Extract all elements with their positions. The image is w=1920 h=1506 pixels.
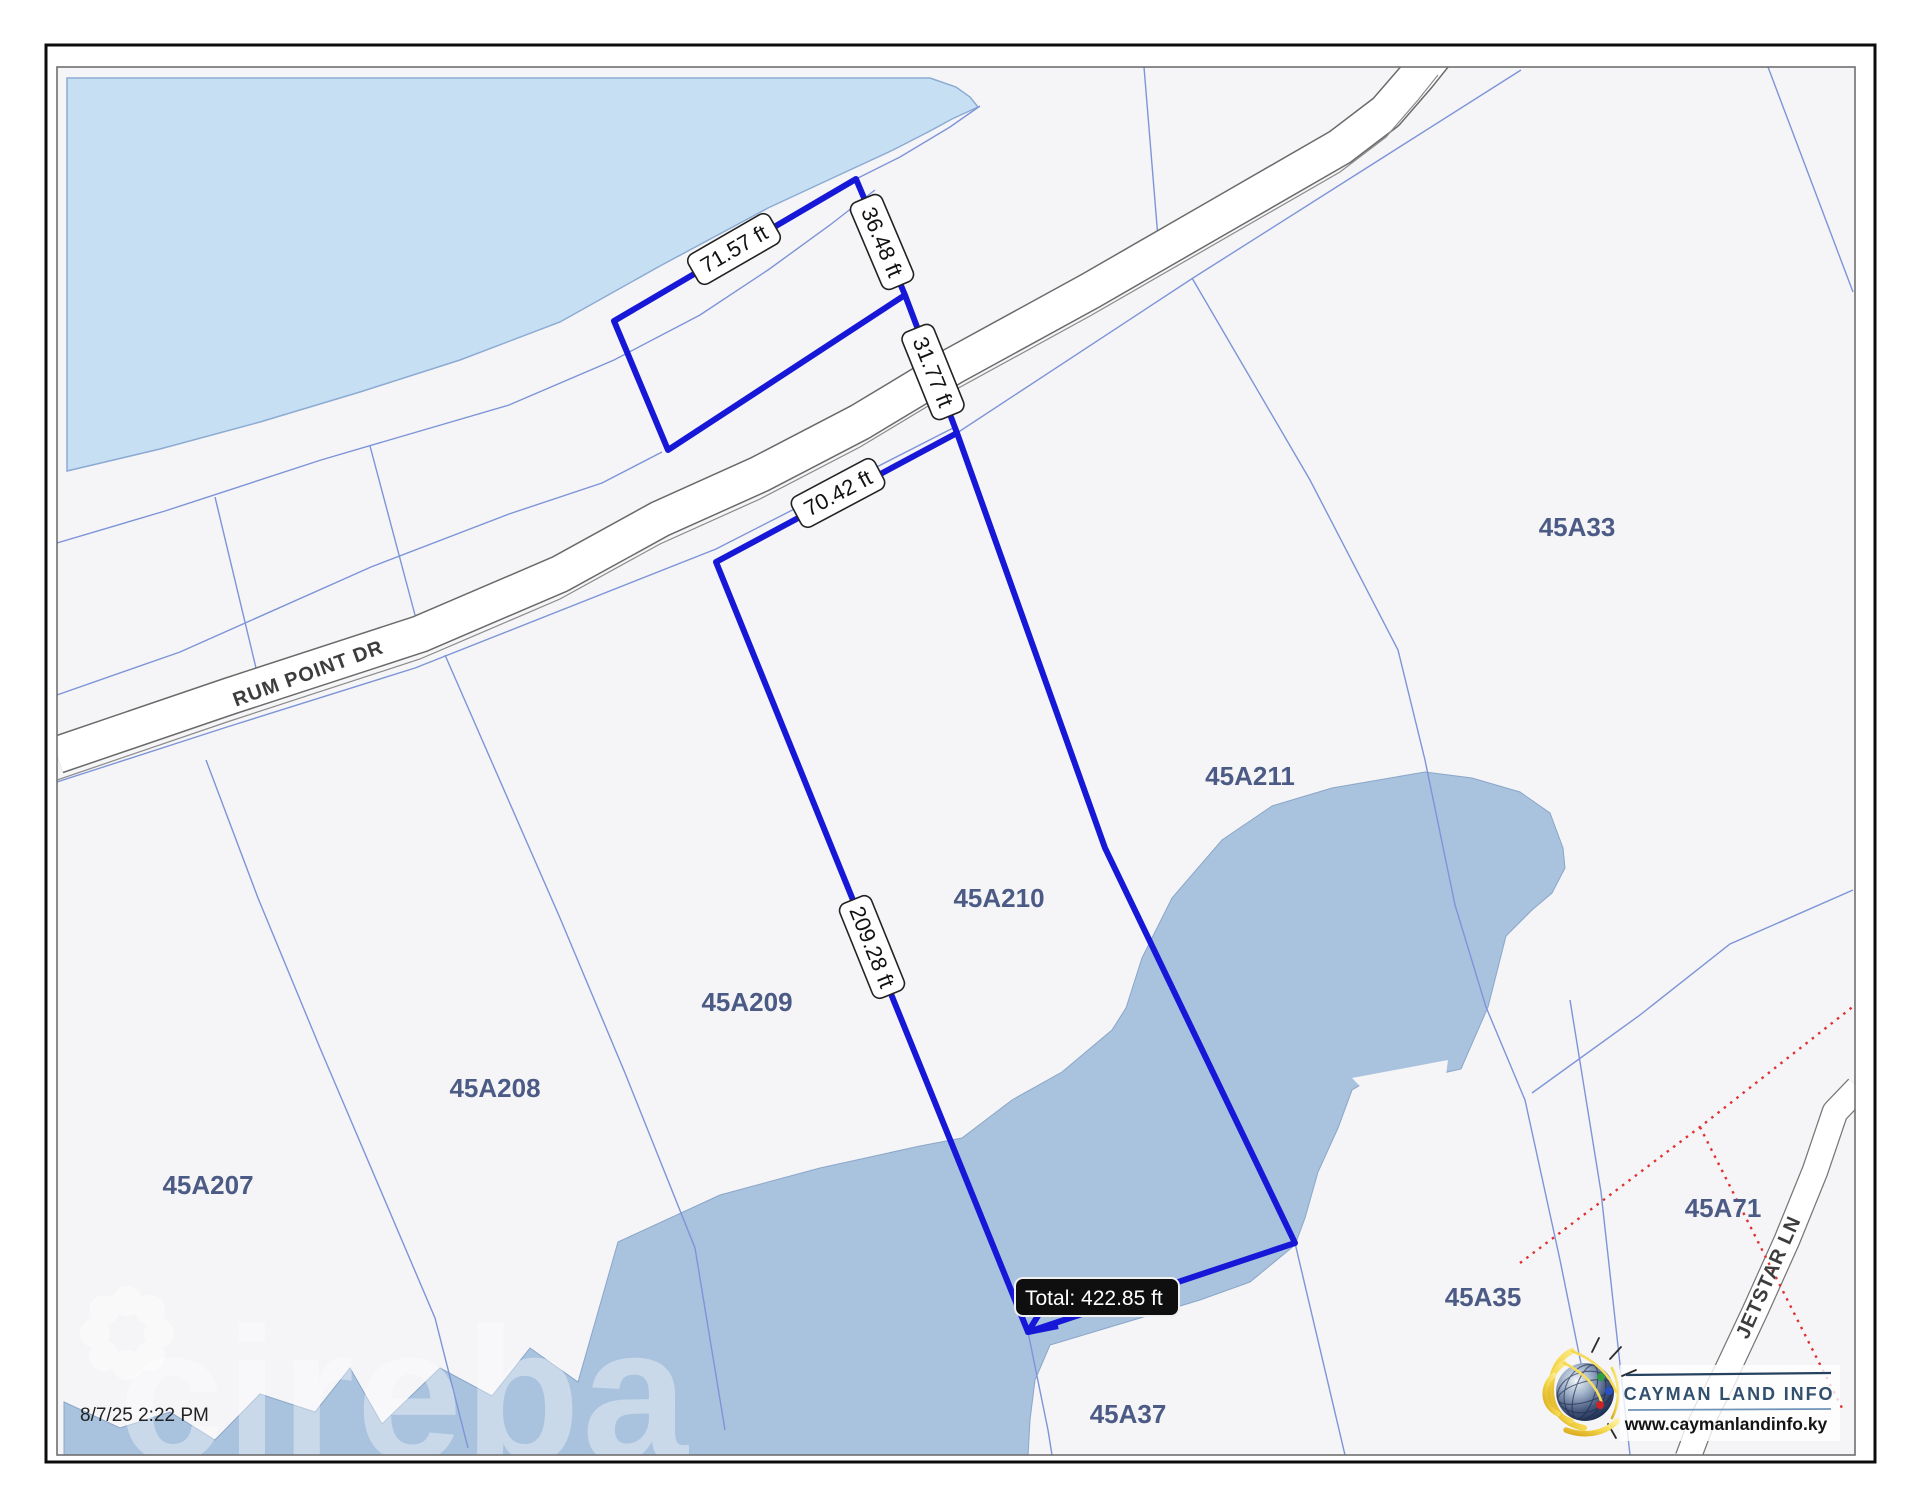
svg-text:45A211: 45A211	[1205, 761, 1295, 791]
svg-text:45A210: 45A210	[953, 883, 1044, 913]
svg-text:45A207: 45A207	[162, 1170, 253, 1200]
svg-text:45A35: 45A35	[1445, 1282, 1522, 1312]
svg-text:45A209: 45A209	[701, 987, 792, 1017]
svg-text:8/7/25 2:22 PM: 8/7/25 2:22 PM	[80, 1405, 209, 1426]
svg-text:45A33: 45A33	[1539, 512, 1616, 542]
svg-text:45A37: 45A37	[1090, 1399, 1167, 1429]
svg-text:CAYMAN LAND INFO: CAYMAN LAND INFO	[1624, 1384, 1835, 1404]
svg-text:Total: 422.85 ft: Total: 422.85 ft	[1025, 1287, 1163, 1310]
svg-text:45A208: 45A208	[449, 1073, 540, 1103]
svg-text:45A71: 45A71	[1685, 1193, 1762, 1223]
svg-text:cireba: cireba	[118, 1289, 690, 1501]
svg-text:www.caymanlandinfo.ky: www.caymanlandinfo.ky	[1624, 1414, 1828, 1434]
